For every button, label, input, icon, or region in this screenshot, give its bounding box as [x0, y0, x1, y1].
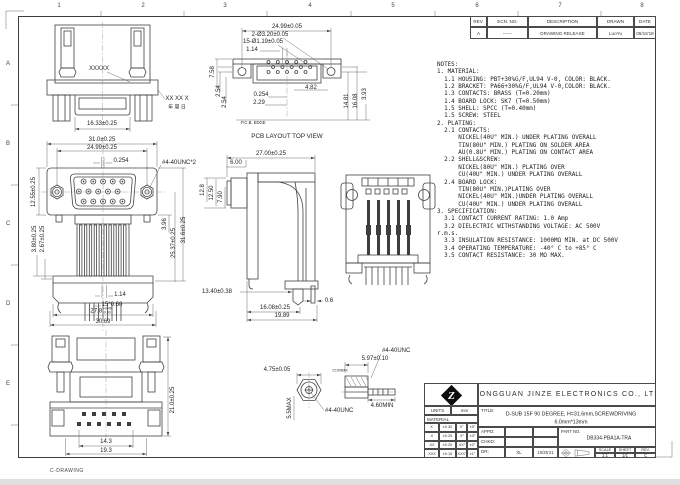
dim-12-8: 12.8: [200, 184, 206, 196]
part-no-value: DB334-PBA1A-TRA: [587, 437, 632, 442]
rear-view-linework: [338, 145, 438, 335]
chkd-value: [505, 437, 533, 447]
date-code-cn-label: 年 周 日: [168, 106, 186, 111]
tol-cell: .X°: [456, 432, 467, 441]
grid-col-label: 6: [475, 3, 478, 9]
grid-col-label: 3: [223, 3, 226, 9]
dim-4-75: 4.75±0.05: [264, 367, 291, 373]
screw-detail-view: 4.75±0.05 5.5MAX #4-40UNC 5.97±0.10 C0.5…: [205, 340, 440, 458]
dim-1-14: 1.14: [246, 47, 258, 53]
dim-0-254-front: 0.254: [113, 158, 128, 164]
dim-27-8-value: 27.8: [90, 308, 102, 314]
dim-4-60-min: 4.60MIN: [371, 403, 394, 409]
drawing-title-line2: 6.0mm*13mm: [555, 420, 588, 425]
dim-7-58: 7.58: [210, 66, 216, 78]
grid-row-label: A: [6, 61, 10, 67]
dim-2-67: 2.67±0.25: [40, 226, 46, 253]
drawing-sheet: 1 2 3 4 5 6 7 8 A B C D E REV. ECN. NO. …: [0, 0, 680, 485]
rev-value: C: [635, 453, 656, 458]
dim-holes-small: 15-Ø1.19±0.05: [243, 39, 283, 45]
bottom-view-linework: [25, 22, 215, 140]
pcb-edge-label: P.C.B. EDGE: [241, 121, 266, 125]
tol-cell: ±1°: [467, 449, 478, 458]
dim-2-54-b: 2.54: [222, 96, 228, 108]
tol-cell: .XXX: [424, 449, 439, 458]
chkd-date: [533, 437, 558, 447]
tol-cell: ±0.20: [439, 441, 456, 450]
rev-header: REV.: [470, 16, 487, 27]
dim-27-8-tol-minus: -0.00: [103, 311, 112, 315]
grid-col-label: 5: [391, 3, 394, 9]
date-code-label: XX XX X: [165, 96, 188, 102]
side-view: 27.00±0.25 6.00 12.8 12.50 7.90 13.40±0.…: [195, 140, 355, 335]
tol-cell: ±3°: [467, 432, 478, 441]
dim-14-3: 14.3: [100, 439, 112, 445]
dim-2-29: 2.29: [253, 100, 265, 106]
chkd-label: CHKD:: [478, 437, 505, 447]
rear-view: [338, 145, 438, 335]
dim-12-55: 12.55±0.25: [31, 177, 37, 207]
dr-name: XL: [505, 447, 533, 458]
tol-cell: ±0.30: [439, 423, 456, 432]
rev-cell: DRAWING RELEASE: [528, 27, 597, 39]
screw-thread-label: #4-40UNC*2: [162, 160, 196, 166]
grid-col-label: 7: [558, 3, 561, 9]
tol-cell: .X: [424, 432, 439, 441]
grid-col-label: 2: [141, 3, 144, 9]
rev-cell: ------: [487, 27, 528, 39]
rev-cell: LuoYu: [597, 27, 634, 39]
rev-header: DESCRIPTION: [528, 16, 597, 27]
grid-col-label: 1: [57, 3, 60, 9]
dim-5-5-max: 5.5MAX: [287, 397, 293, 418]
dr-label: DR:: [478, 447, 505, 458]
scale-value: 1:1: [595, 453, 615, 458]
tol-cell: ±0.15: [439, 449, 456, 458]
dim-3-93: 3.93: [362, 88, 368, 100]
dim-30-69: 30.69: [95, 319, 110, 325]
rev-cell: 06/16'18: [634, 27, 656, 39]
dim-27-00: 27.00±0.25: [256, 151, 286, 157]
dim-19-89: 19.89: [274, 313, 289, 319]
units-value: mm: [451, 406, 478, 415]
dim-6-00: 6.00: [230, 160, 242, 166]
dim-3-96: 3.96: [162, 218, 168, 230]
units-label: UNITS: [424, 406, 451, 415]
third-angle-projection-icon: [560, 448, 594, 458]
grid-col-label: 8: [640, 3, 643, 9]
grid-row-label: E: [6, 381, 10, 387]
grid-row-label: B: [6, 141, 10, 147]
pcb-layout-view: 24.99±0.05 2-Ø3.20±0.05 15-Ø1.19±0.05 1.…: [208, 20, 440, 145]
dim-chamfer: C0.50MAX: [332, 369, 347, 372]
dim-31-6: 31.6±0.25: [181, 217, 187, 244]
top-view: 21.0±0.25 14.3 19.3: [22, 330, 207, 460]
logo-letter: Z: [444, 388, 459, 403]
dim-24-99-front: 24.99±0.25: [87, 145, 117, 151]
tol-cell: .XX: [424, 441, 439, 450]
dim-holes-large: 2-Ø3.20±0.05: [252, 32, 289, 38]
dim-1-14-front: 1.14: [114, 292, 126, 298]
tol-cell: .XX°: [456, 441, 467, 450]
dim-14-81: 14.81: [344, 93, 350, 108]
tol-cell: ±0.25: [439, 432, 456, 441]
rev-header: DATE: [634, 16, 656, 27]
tol-cell: ±2°: [467, 441, 478, 450]
tol-cell: X°: [456, 423, 467, 432]
appd-date: [533, 427, 558, 437]
company-logo: Z: [441, 384, 462, 405]
rev-header: DRAWN: [597, 16, 634, 27]
screw-unc-label-a: #4-40UNC: [325, 408, 353, 414]
projection-cell: [558, 447, 595, 458]
dim-0-254: 0.254: [253, 92, 268, 98]
appd-label: APPD:: [478, 427, 505, 437]
grid-row-label: C: [6, 221, 10, 227]
rev-header: ECN. NO.: [487, 16, 528, 27]
sheet-value: 1/1: [615, 453, 635, 458]
corner-note: C-DRAWING: [50, 468, 84, 474]
tol-cell: .XXX°: [456, 449, 467, 458]
dim-16-08: 16.08: [353, 93, 359, 108]
bottom-strip: [0, 479, 680, 485]
tol-cell: X: [424, 423, 439, 432]
title-label: TITLE:: [481, 408, 495, 413]
dim-16-08-side: 16.08±0.25: [260, 305, 290, 311]
dim-24-99: 24.99±0.05: [272, 24, 302, 30]
company-name: DONGGUAN JINZE ELECTRONICS CO., LTD: [478, 383, 656, 406]
appd-value: [505, 427, 533, 437]
tol-cell: ±5°: [467, 423, 478, 432]
dim-19-3: 19.3: [100, 448, 112, 454]
drawing-title-line1: D-SUB 15F 90 DEGREE, H=31.6mm,SCREWDRIVI…: [506, 412, 637, 417]
grid-row-label: D: [6, 301, 10, 307]
front-view: 31.0±0.25 24.99±0.25 0.254 #4-40UNC*2 12…: [15, 135, 225, 335]
dim-13-40: 13.40±0.38: [202, 289, 232, 295]
logo-cell: Z: [424, 383, 478, 406]
bottom-view: XXXXX XX XX X 年 周 日 16.33±0.25: [25, 22, 215, 140]
dim-3-80: 3.80±0.25: [32, 226, 38, 253]
grid-col-label: 4: [308, 3, 311, 9]
dim-16-33: 16.33±0.25: [87, 121, 117, 127]
dr-date: 10/25'21: [533, 447, 558, 458]
material-label: MATERIAL: [424, 415, 478, 423]
dim-27-8: 27.8+0.40-0.00: [90, 307, 111, 314]
dim-21-0: 21.0±0.25: [170, 387, 176, 414]
dim-0-6: 0.6: [325, 298, 333, 304]
dim-25-37: 25.37±0.25: [171, 228, 177, 258]
screw-detail-linework: [205, 340, 440, 458]
part-marking-label: XXXXX: [89, 66, 109, 72]
dim-4-82: 4.82: [305, 85, 317, 91]
notes-block: NOTES: 1. MATERIAL: 1.1 HOUSING: PBT+30%…: [437, 62, 618, 260]
dim-5-97: 5.97±0.10: [362, 356, 389, 362]
part-no-label: PART NO.: [561, 429, 580, 434]
rev-cell: A: [470, 27, 487, 39]
screw-unc-label-b: #4-40UNC: [382, 348, 410, 354]
dim-12-50: 12.50: [209, 185, 215, 200]
dim-31-0: 31.0±0.25: [89, 137, 116, 143]
top-view-linework: [22, 330, 207, 460]
title-block: Z DONGGUAN JINZE ELECTRONICS CO., LTD UN…: [424, 383, 656, 458]
dim-7-90: 7.90: [218, 191, 224, 203]
revision-table: REV. ECN. NO. DESCRIPTION DRAWN DATE A -…: [470, 16, 656, 39]
